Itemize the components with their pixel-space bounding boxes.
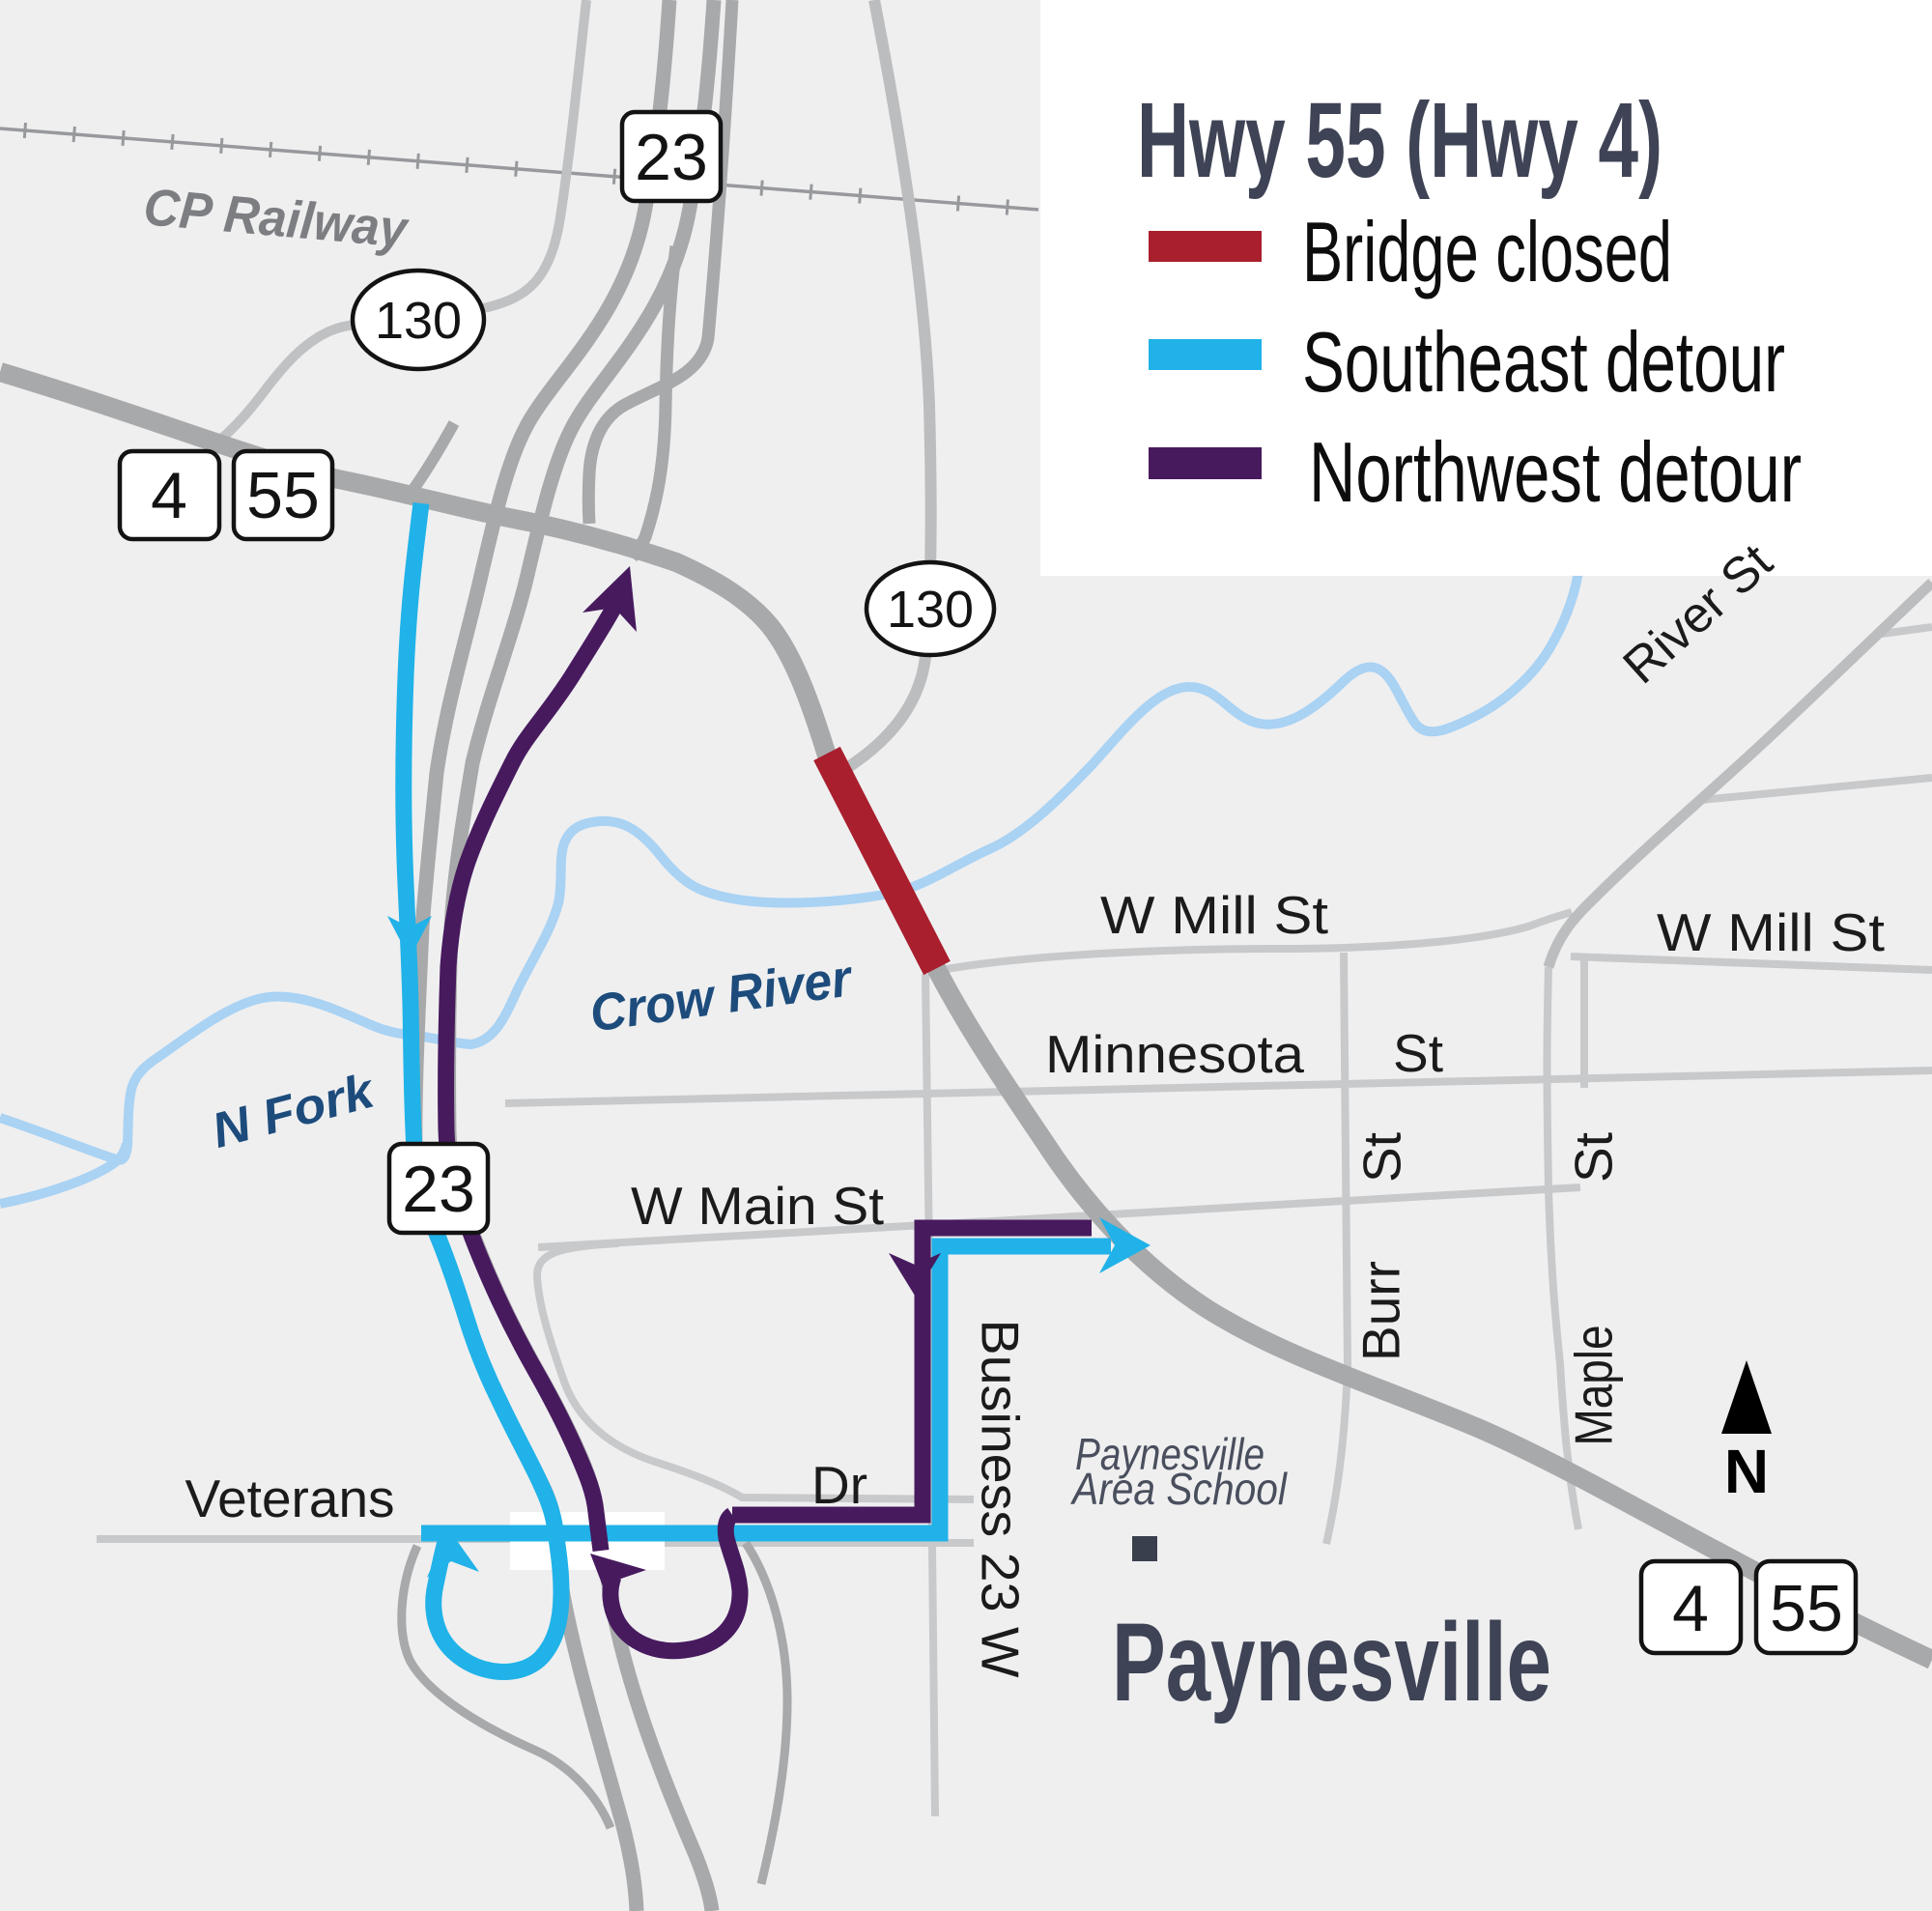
svg-text:St: St — [1564, 1132, 1624, 1183]
svg-text:Maple: Maple — [1564, 1326, 1624, 1446]
svg-text:Bridge closed: Bridge closed — [1302, 204, 1672, 299]
svg-text:Dr: Dr — [811, 1455, 867, 1515]
svg-text:130: 130 — [375, 292, 462, 350]
svg-text:Paynesville: Paynesville — [1112, 1601, 1551, 1725]
svg-text:55: 55 — [1770, 1572, 1843, 1645]
svg-text:St: St — [1352, 1132, 1412, 1183]
svg-text:Burr: Burr — [1351, 1261, 1411, 1361]
svg-text:55: 55 — [246, 459, 320, 532]
svg-text:N: N — [1724, 1437, 1769, 1506]
svg-text:Northwest detour: Northwest detour — [1309, 424, 1802, 520]
svg-text:Southeast detour: Southeast detour — [1302, 314, 1785, 410]
svg-text:Business 23 W: Business 23 W — [970, 1320, 1030, 1678]
svg-text:23: 23 — [635, 121, 708, 194]
svg-text:W Mill St: W Mill St — [1100, 885, 1328, 945]
svg-text:4: 4 — [1672, 1572, 1709, 1645]
svg-text:Veterans: Veterans — [185, 1469, 394, 1528]
svg-text:W Main St: W Main St — [631, 1176, 884, 1236]
svg-text:Hwy 55 (Hwy 4): Hwy 55 (Hwy 4) — [1137, 81, 1662, 200]
svg-text:4: 4 — [151, 459, 187, 532]
svg-text:130: 130 — [887, 581, 974, 639]
svg-text:Area School: Area School — [1069, 1464, 1288, 1514]
svg-text:Minnesota: Minnesota — [1045, 1024, 1304, 1084]
svg-text:23: 23 — [402, 1153, 475, 1226]
svg-text:St: St — [1393, 1023, 1443, 1083]
svg-text:W Mill St: W Mill St — [1657, 902, 1885, 962]
